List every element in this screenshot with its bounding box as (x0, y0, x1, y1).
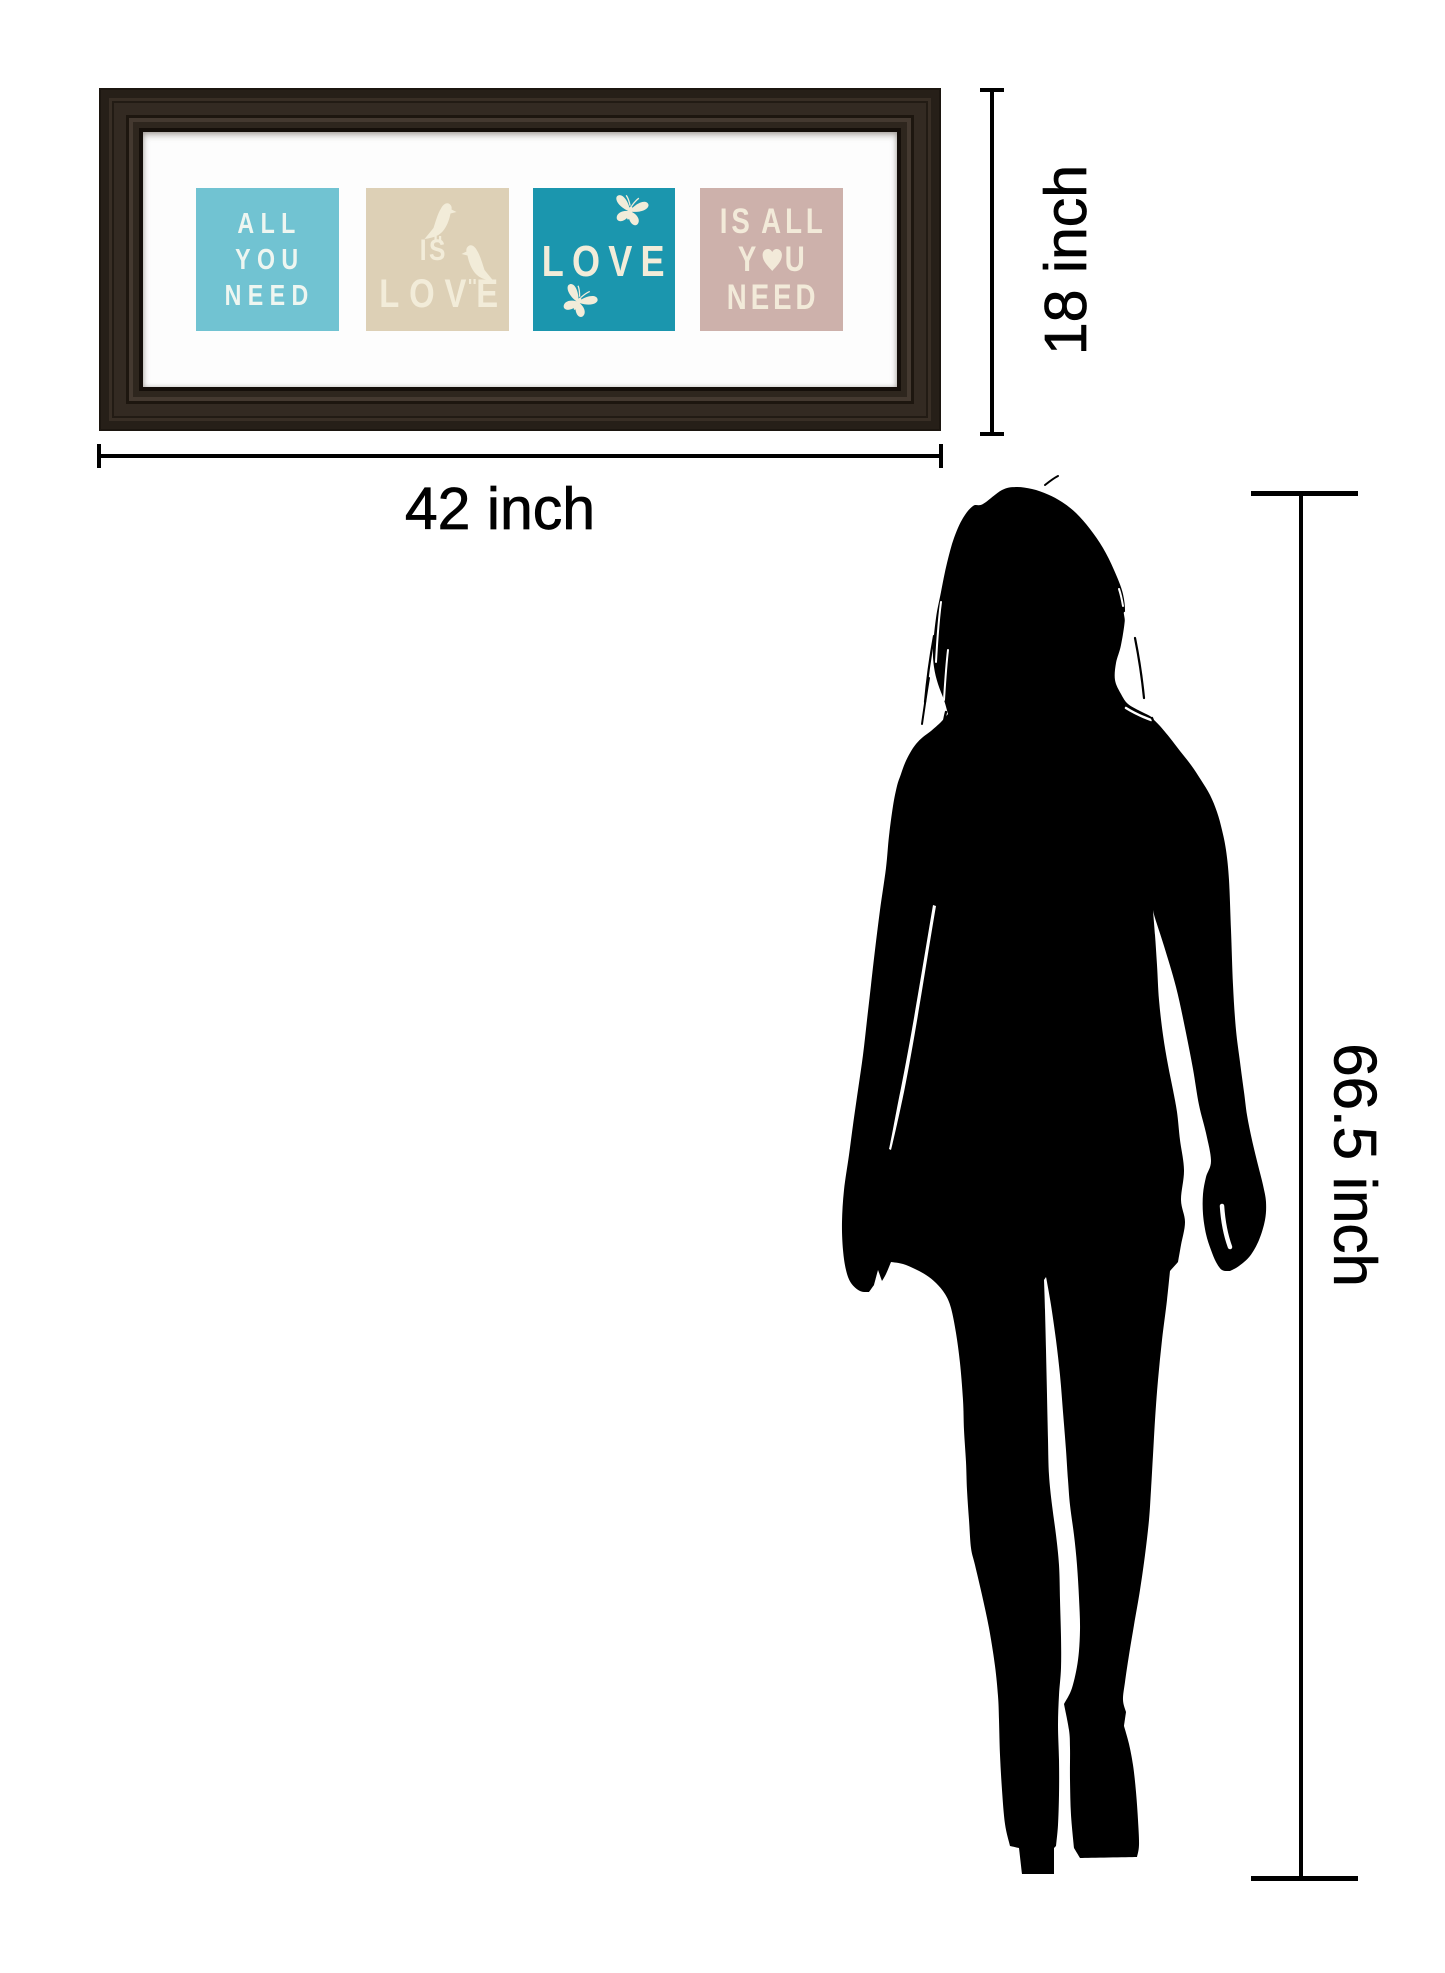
svg-text:LOVE: LOVE (379, 271, 508, 316)
svg-text:IS: IS (420, 233, 448, 267)
svg-text:LOVE: LOVE (541, 237, 672, 286)
